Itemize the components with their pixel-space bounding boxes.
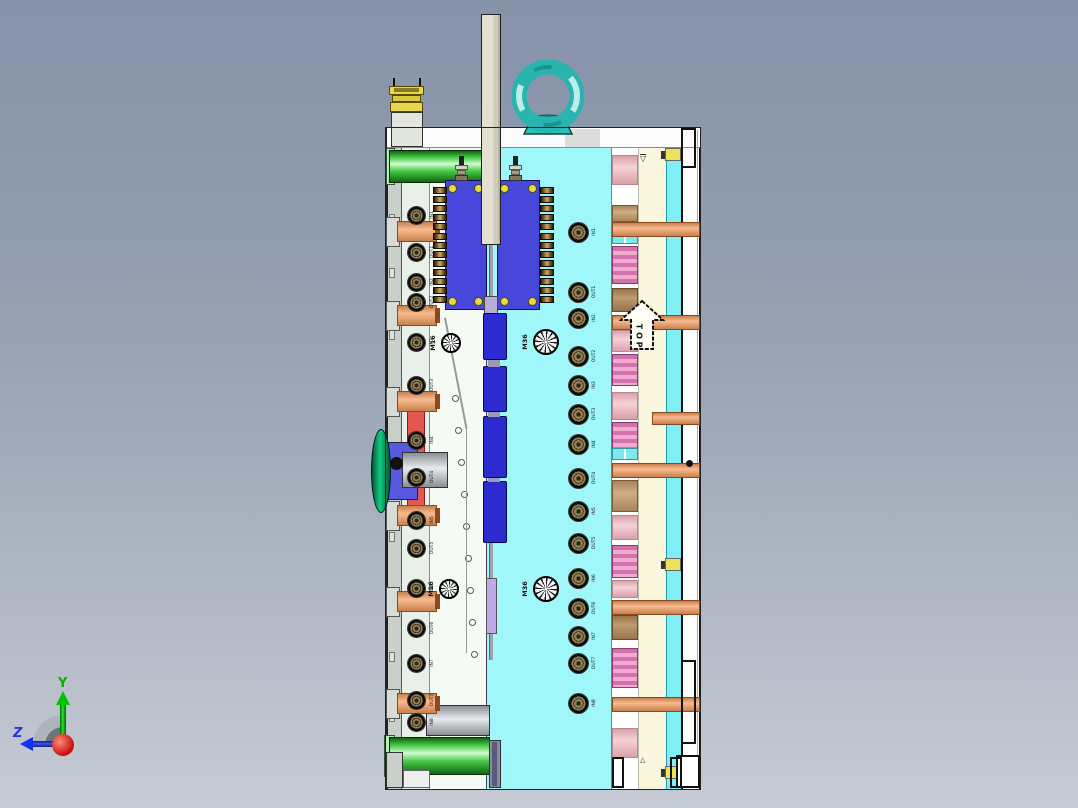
gap-foot: [612, 757, 624, 788]
cooling-port-label: IN3: [586, 380, 604, 390]
cooling-port-label: IN2: [424, 277, 442, 287]
datum-mark-lower: △: [640, 757, 645, 764]
cad-viewport[interactable]: T O P ▽ △ IN1OUT1IN2OUT2IN3OUT3IN4OUT4IN…: [0, 0, 1078, 808]
hex-fitting: [540, 278, 554, 285]
cooling-port-screw: [408, 620, 425, 637]
support-pin: [397, 391, 437, 412]
y-axis-label: Y: [58, 676, 67, 691]
plate-notch: [389, 652, 395, 662]
block-corner-screw: [474, 297, 483, 306]
cooling-port-label: OUT6: [424, 623, 442, 633]
cooling-port-screw: [408, 334, 425, 351]
cooling-port-screw: [408, 714, 425, 731]
knob-bolt: [390, 457, 403, 470]
cooling-port-screw: [408, 540, 425, 557]
coupler-body: [392, 95, 421, 102]
cooling-port-screw: [408, 469, 425, 486]
cooling-port-label: OUT7: [424, 695, 442, 705]
thread-plug: [533, 576, 559, 602]
nozzle-spacer: [488, 478, 500, 482]
thread-plug: [441, 333, 461, 353]
cooling-port-label: IN5: [586, 506, 604, 516]
hex-fitting: [540, 214, 554, 221]
plate-notch: [389, 268, 395, 278]
cooling-port-label: OUT2: [586, 351, 604, 361]
cooling-port-label: OUT3: [424, 380, 442, 390]
nozzle-block: [483, 481, 507, 543]
thread-plug: [533, 329, 559, 355]
cooling-port-label: IN8: [586, 698, 604, 708]
nozzle-block: [483, 416, 507, 478]
hex-fitting: [540, 223, 554, 230]
valve-base: [509, 175, 522, 181]
hex-fitting: [540, 287, 554, 294]
vertical-guide-bar: [481, 14, 501, 245]
nozzle-spacer: [488, 360, 500, 367]
cooling-port-screw: [408, 274, 425, 291]
cooling-port-screw: [408, 244, 425, 261]
hex-fitting: [433, 233, 447, 240]
gap-component: [612, 728, 638, 758]
nozzle-block: [483, 313, 507, 360]
green-cylinder-top: [389, 150, 490, 183]
thread-plug-label: M36: [516, 337, 534, 347]
gap-component: [612, 155, 638, 185]
manifold-block-right: [497, 180, 540, 310]
block-corner-screw: [448, 297, 457, 306]
cooling-port-label: OUT4: [424, 472, 442, 482]
hex-fitting: [540, 233, 554, 240]
yellow-pin: [665, 558, 681, 571]
lifting-eyebolt: [506, 52, 592, 136]
hex-fitting: [540, 205, 554, 212]
cooling-port-screw: [408, 692, 425, 709]
cooling-port-label: OUT4: [586, 473, 604, 483]
block-corner-screw: [528, 297, 537, 306]
coupler-base: [390, 102, 423, 112]
cooling-port-label: OUT5: [586, 538, 604, 548]
gap-component: [612, 648, 638, 688]
thread-plug-label: M16: [424, 338, 442, 348]
block-corner-screw: [500, 184, 509, 193]
cooling-port-label: IN8: [424, 717, 442, 727]
cooling-port-label: OUT6: [586, 603, 604, 613]
cooling-port-label: IN2: [586, 313, 604, 323]
cooling-port-label: OUT1: [586, 287, 604, 297]
gap-component: [612, 246, 638, 284]
hex-fitting: [540, 269, 554, 276]
y-axis-arrowhead: [56, 691, 70, 705]
z-axis-label: Z: [13, 726, 22, 741]
datum-mark-upper: ▽: [640, 154, 646, 163]
hex-fitting: [433, 269, 447, 276]
return-pin-rod: [652, 412, 700, 425]
right-plate-notch: [681, 128, 696, 168]
plate-notch: [389, 330, 395, 340]
cooling-port-screw: [408, 377, 425, 394]
plate-notch: [389, 532, 395, 542]
hex-fitting: [540, 260, 554, 267]
plate-hole: [455, 427, 462, 434]
coupler-block: [391, 112, 423, 147]
cooling-port-label: OUT2: [424, 297, 442, 307]
cooling-port-label: IN6: [586, 573, 604, 583]
gap-component: [612, 480, 638, 512]
plate-hole: [471, 651, 478, 658]
bottom-left-foot: [386, 752, 403, 788]
cooling-port-label: IN4: [424, 435, 442, 445]
cooling-port-screw: [408, 294, 425, 311]
hex-fitting: [433, 187, 447, 194]
hex-fitting: [433, 196, 447, 203]
yellow-pin: [665, 148, 681, 161]
plate-hole: [452, 395, 459, 402]
hex-fitting: [433, 260, 447, 267]
gap-component: [612, 392, 638, 420]
thread-plug: [439, 579, 459, 599]
hex-fitting: [540, 196, 554, 203]
nozzle-spacer: [488, 412, 500, 417]
cooling-port-label: OUT5: [424, 543, 442, 553]
gap-component: [612, 580, 638, 598]
cooling-port-screw: [408, 432, 425, 449]
cooling-port-label: OUT7: [586, 658, 604, 668]
block-corner-screw: [528, 184, 537, 193]
gap-component: [612, 354, 638, 386]
plate-hole: [469, 619, 476, 626]
top-arrow-letter-p: P: [635, 337, 644, 353]
hex-fitting: [540, 242, 554, 249]
knob-disc-green: [371, 429, 391, 513]
thread-plug-label: M16: [422, 584, 440, 594]
support-pin: [397, 221, 437, 242]
bottom-left-block: [403, 770, 430, 788]
block-corner-screw: [500, 297, 509, 306]
cooling-port-label: OUT1: [424, 247, 442, 257]
cooling-port-label: OUT3: [586, 409, 604, 419]
hex-fitting: [433, 287, 447, 294]
plate-hole: [458, 459, 465, 466]
hex-fitting: [540, 296, 554, 303]
return-pin-rod: [612, 222, 700, 237]
thread-plug-label: M36: [516, 584, 534, 594]
hex-fitting: [540, 251, 554, 258]
cooling-port-label: IN7: [424, 658, 442, 668]
cooling-port-label: IN1: [424, 210, 442, 220]
return-pin-rod: [612, 600, 700, 615]
right-plate-notch: [681, 660, 696, 744]
origin-sphere: [52, 734, 74, 756]
valve-base: [455, 175, 468, 181]
gap-component: [612, 448, 638, 460]
support-pin-tip: [435, 308, 440, 323]
nozzle-sleeve: [486, 578, 497, 634]
mold-assembly-side-view: T O P ▽ △ IN1OUT1IN2OUT2IN3OUT3IN4OUT4IN…: [0, 0, 1078, 808]
block-corner-screw: [448, 184, 457, 193]
cooling-port-label: IN7: [586, 631, 604, 641]
cooling-port-label: IN4: [586, 439, 604, 449]
support-pin-tip: [435, 594, 440, 609]
gap-foot: [670, 757, 682, 788]
gap-component: [612, 515, 638, 540]
support-pin-tip: [435, 394, 440, 409]
cooling-port-screw: [408, 207, 425, 224]
gap-component: [612, 545, 638, 578]
cooling-port-screw: [408, 655, 425, 672]
right-plate-screw: [686, 460, 693, 467]
nozzle-block: [483, 366, 507, 412]
bottom-slab-core: [492, 742, 497, 786]
gap-component: [612, 205, 638, 222]
cooling-port-label: IN5: [424, 515, 442, 525]
gap-component: [612, 615, 638, 640]
hex-fitting: [540, 187, 554, 194]
hex-fitting: [433, 223, 447, 230]
cooling-port-screw: [408, 512, 425, 529]
cooling-port-label: IN1: [586, 227, 604, 237]
plate-scribe-line: [466, 428, 467, 653]
coupler-cap-band: [394, 88, 419, 92]
plate-hole: [467, 587, 474, 594]
